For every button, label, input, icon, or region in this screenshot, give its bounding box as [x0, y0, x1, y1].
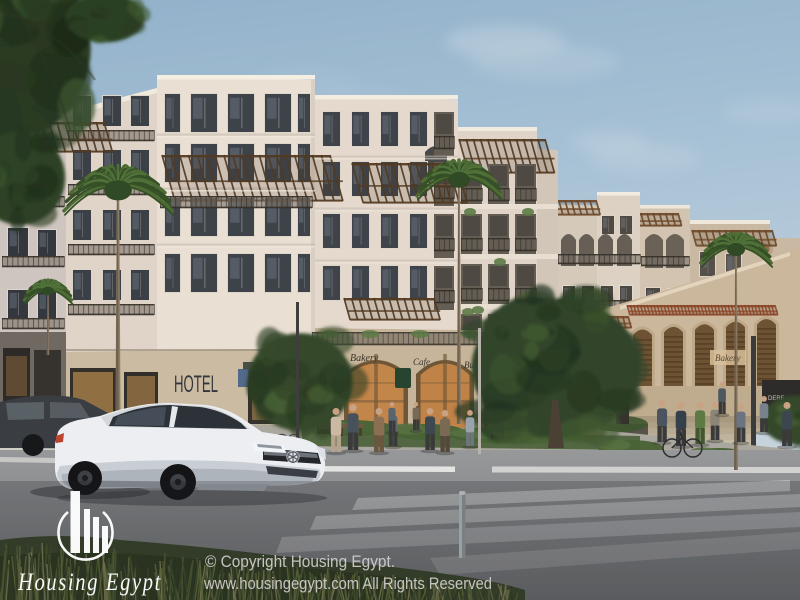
svg-text:© Copyright Housing Egypt.: © Copyright Housing Egypt.	[205, 552, 395, 571]
svg-text:HOTEL: HOTEL	[174, 371, 218, 398]
svg-text:Cafe: Cafe	[413, 357, 430, 367]
svg-text:Bakery: Bakery	[350, 353, 379, 364]
svg-text:Housing Egypt: Housing Egypt	[17, 569, 162, 596]
svg-text:www.housingegypt.com All Right: www.housingegypt.com All Rights Reserved	[203, 574, 492, 593]
